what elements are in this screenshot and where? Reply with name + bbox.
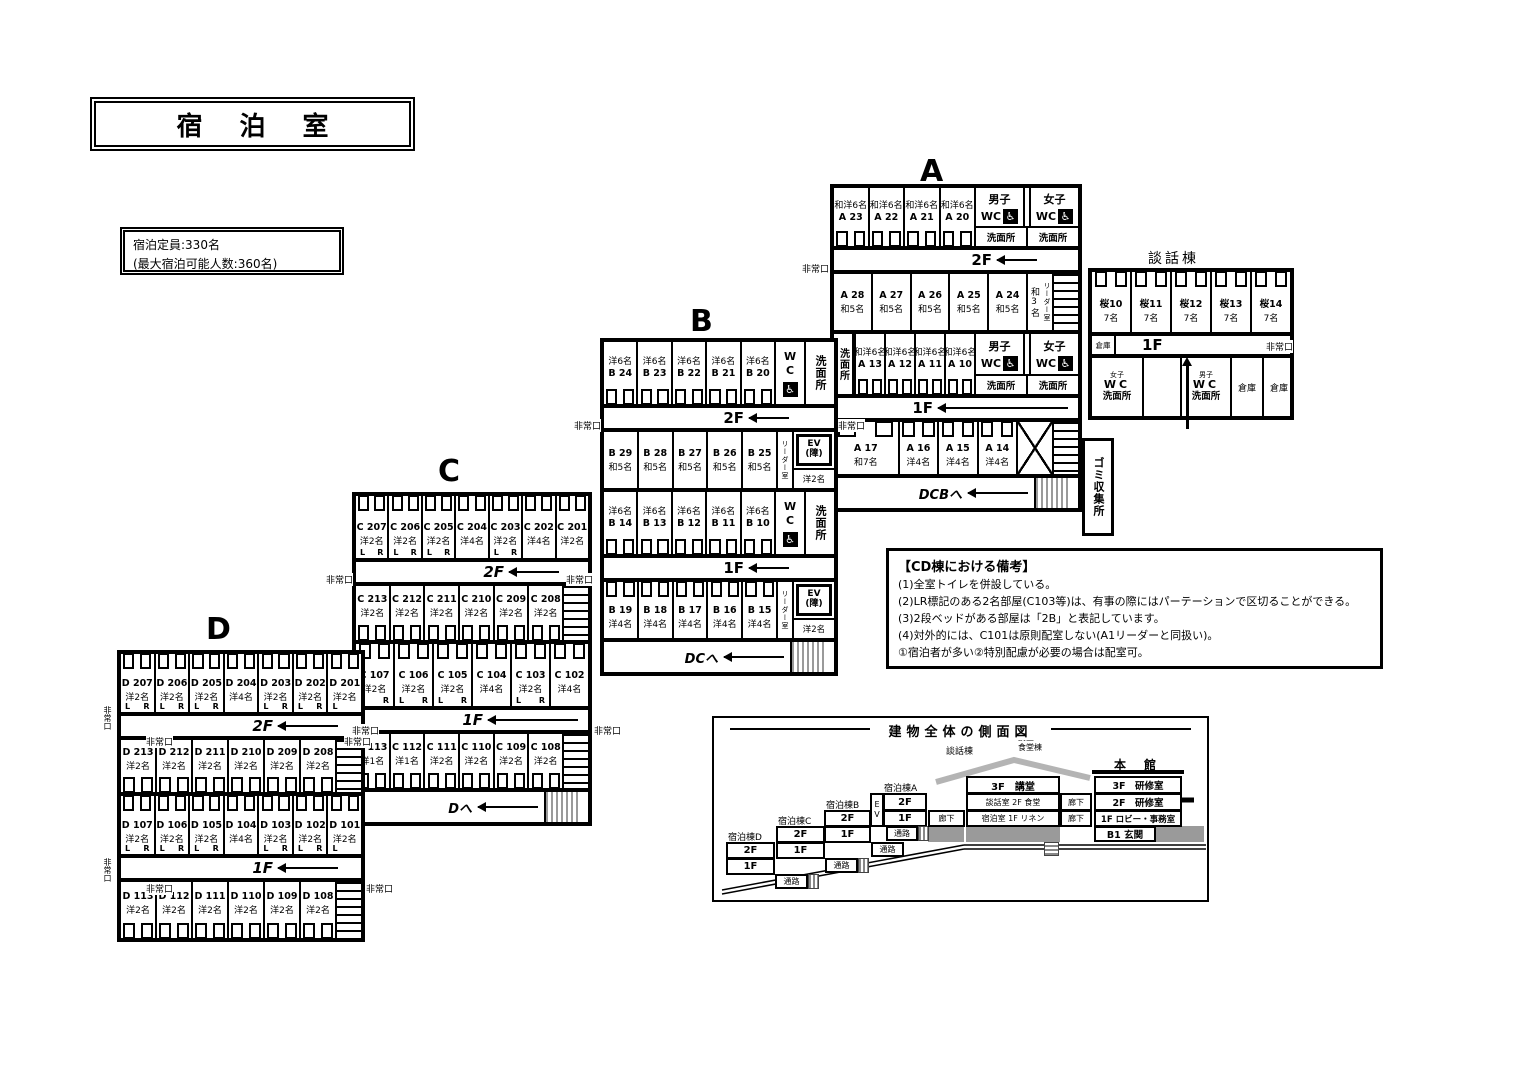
room-id: D 210: [230, 747, 261, 758]
room-id: C 202: [524, 522, 554, 533]
d-1f-room-row: D 107 洋2名 LR D 106 洋2名 LR D 105 洋2名 LR D…: [121, 796, 361, 858]
room-capacity: 洋2名: [395, 606, 419, 619]
room: C 206 洋2名 LR: [387, 496, 420, 558]
room-id: A 12: [888, 359, 912, 370]
wheelchair-icon: ♿: [783, 532, 798, 547]
room-id: A 26: [918, 290, 942, 301]
room: D 105 洋2名 LR: [188, 796, 223, 854]
c-exit-passage: Dへ: [356, 792, 588, 822]
room-capacity: 洋4名: [609, 617, 633, 630]
room-capacity: 洋2名: [363, 682, 387, 695]
room-id: C 109: [496, 742, 526, 753]
sv-lounge-label: 談話棟: [946, 744, 973, 757]
room-id: D 107: [122, 820, 153, 831]
room: A 26 和5名: [910, 274, 949, 330]
a-1f-room-row2: A 17 和7名 A 16 洋4名 A 15 洋4名 A 14 洋4名: [834, 422, 1078, 478]
cd-notes-box: 【CD棟における備考】 (1)全室トイレを併設している。(2)LR標記のある2名…: [886, 548, 1383, 669]
sv-hall-label2: 食堂棟: [1018, 742, 1042, 753]
room-capacity: 洋6名: [608, 354, 632, 367]
room-id: A 15: [946, 443, 970, 454]
room: D 103 洋2名 LR: [257, 796, 292, 854]
d-2f-room-row2: D 213 洋2名 D 212 洋2名 D 211 洋2名 D 210 洋2名 …: [121, 740, 361, 796]
room-capacity: 洋6名: [712, 354, 736, 367]
passage: [1142, 358, 1180, 416]
wc-room: WC ♿: [774, 492, 804, 554]
title-rule: [730, 728, 870, 730]
room-id: A 17: [854, 443, 878, 454]
building-c: C 207 洋2名 LR C 206 洋2名 LR C 205 洋2名 LR C…: [352, 492, 592, 826]
note-line: (2)LR標記のある2名部屋(C103等)は、有事の際にはパーテーションで区切る…: [898, 593, 1371, 609]
room-capacity: 洋2名: [360, 534, 384, 547]
left-arrow: [749, 567, 789, 569]
building-a: 和洋6名 A 23 和洋6名 A 22 和洋6名 A 21 和洋6名 A 20 …: [830, 184, 1082, 512]
room-id: 桜11: [1140, 296, 1163, 310]
room-capacity: 洋2名: [560, 534, 584, 547]
notes-title: 【CD棟における備考】: [898, 556, 1371, 575]
room: B 19 洋4名: [604, 582, 637, 638]
room: 洋6名 B 13: [636, 492, 670, 554]
room: C 201 洋2名: [555, 496, 588, 558]
closed-room: [1016, 422, 1052, 474]
room-id: D 202: [295, 678, 326, 689]
room: 洋6名 B 10: [740, 492, 774, 554]
small-room: 洋2名: [794, 618, 834, 638]
room-id: B 14: [608, 518, 632, 529]
room-capacity: 和洋6名: [834, 198, 867, 211]
floor-tag-1f: 1F: [462, 711, 483, 729]
elevator: EV(障): [796, 434, 832, 466]
garbage-station: ゴミ収集所: [1082, 438, 1114, 536]
stair-hatch: [790, 642, 824, 672]
sv-main-roof: [1092, 770, 1184, 774]
lr-markers: LR: [194, 844, 219, 853]
lr-markers: LR: [263, 702, 288, 711]
room: 洋6名 B 21: [705, 342, 739, 404]
room-id: D 104: [226, 820, 257, 831]
room-capacity: 和洋6名: [941, 198, 974, 211]
room-id: C 103: [515, 670, 545, 681]
storage-room: 倉庫: [1230, 358, 1262, 416]
room-capacity: 和洋6名: [854, 345, 887, 358]
left-arrow: [938, 407, 1068, 409]
room-id: D 109: [266, 891, 297, 902]
room: 和洋6名 A 13: [854, 334, 884, 394]
room-id: C 110: [461, 742, 491, 753]
b-exit-passage: DCへ: [604, 642, 834, 672]
room-id: C 209: [496, 594, 526, 605]
room-id: D 205: [191, 678, 222, 689]
room-id: C 203: [490, 522, 520, 533]
sv-corridor-2f: 廊下: [1060, 793, 1092, 811]
room-capacity: 洋6名: [712, 504, 736, 517]
c-1f-room-row2: C 113 洋1名 C 112 洋1名 C 111 洋2名 C 110 洋2名 …: [356, 734, 588, 792]
elevator-block: EV(障) 洋2名: [792, 582, 834, 638]
room: D 205 洋2名 LR: [188, 654, 223, 712]
note-line: (4)対外的には、C101は原則配室しない(A1リーダーと同扱い)。: [898, 627, 1371, 643]
room: 洋6名 B 24: [604, 342, 636, 404]
emergency-exit-label: 非常口: [102, 858, 113, 882]
room-capacity: 洋6名: [746, 354, 770, 367]
washroom: 洗面所: [804, 492, 834, 554]
floor-tag-2f: 2F: [723, 409, 744, 427]
room: A 25 和5名: [948, 274, 987, 330]
room: 洋6名 B 11: [705, 492, 739, 554]
room-capacity: 洋2名: [198, 903, 222, 916]
room: 桜14 7名: [1250, 272, 1290, 332]
room-id: D 207: [122, 678, 153, 689]
sv-stairs: [808, 874, 819, 889]
room: A 14 洋4名: [977, 422, 1016, 474]
room-capacity: 洋6名: [643, 504, 667, 517]
elevator-block: EV(障) 洋2名: [792, 432, 834, 488]
room-capacity: 洋2名: [270, 759, 294, 772]
wall: [1023, 188, 1031, 226]
room-id: A 11: [918, 359, 942, 370]
room-id: D 111: [194, 891, 225, 902]
room-capacity: 洋2名: [270, 903, 294, 916]
womens-wc: 女子 WC♿: [1031, 334, 1078, 374]
sv-corridor-a: 廊下: [928, 810, 965, 827]
room: D 206 洋2名 LR: [154, 654, 189, 712]
lr-markers: L: [332, 844, 357, 853]
storage-room: 倉庫: [1262, 358, 1294, 416]
building-d-label: D: [206, 612, 231, 647]
lr-markers: LR: [494, 548, 517, 557]
sv-main-2f: 2F 研修室: [1094, 793, 1182, 811]
room-capacity: 和洋6名: [944, 345, 977, 358]
mens-wc: 男子 WC♿: [976, 188, 1023, 226]
room: B 17 洋4名: [672, 582, 707, 638]
room: 和洋6名 A 12: [884, 334, 914, 394]
room-id: C 201: [557, 522, 587, 533]
room-capacity: 洋2名: [499, 754, 523, 767]
room-id: D 201: [329, 678, 360, 689]
note-line: (3)2段ベッドがある部屋は「2B」と表記しています。: [898, 610, 1371, 626]
lr-markers: LR: [125, 702, 150, 711]
room-capacity: 洋2名: [360, 606, 384, 619]
room: D 210 洋2名: [227, 740, 263, 792]
b-1f-room-row2: B 19 洋4名 B 18 洋4名 B 17 洋4名 B 16 洋4名 B 15…: [604, 582, 834, 642]
sv-d-passage: 通路: [775, 874, 808, 889]
lr-markers: LR: [160, 844, 185, 853]
room-capacity: 和5名: [609, 460, 633, 473]
room-capacity: 洋6名: [746, 504, 770, 517]
room: C 109 洋2名: [493, 734, 528, 788]
room: D 108 洋2名: [299, 882, 335, 938]
wall: [1023, 334, 1031, 374]
room-id: C 102: [554, 670, 584, 681]
room: C 210 洋2名: [458, 586, 493, 640]
room-capacity: 和5名: [918, 302, 942, 315]
lounge-corridor: 倉庫 1F: [1092, 336, 1290, 358]
sv-stairs: [858, 858, 869, 873]
room-capacity: 洋2名: [162, 903, 186, 916]
left-arrow: [997, 259, 1037, 261]
sv-main-b1: B1 玄関: [1094, 826, 1156, 842]
lr-markers: LR: [393, 548, 416, 557]
room-capacity: 洋2名: [427, 534, 451, 547]
building-c-label: C: [438, 454, 460, 489]
a-1f-room-row: 洗面所 和洋6名 A 13 和洋6名 A 12 和洋6名 A 11 和洋6名 A…: [834, 334, 1078, 398]
room-capacity: 洋2名: [126, 759, 150, 772]
room-id: C 205: [423, 522, 453, 533]
room: C 105 洋2名 LR: [432, 644, 471, 706]
sv-c-passage: 通路: [825, 858, 858, 873]
room: C 211 洋2名: [423, 586, 458, 640]
room-capacity: 洋2名: [430, 754, 454, 767]
to-dcb-label: DCBへ: [919, 484, 962, 503]
leader-room: リーダー室: [776, 432, 792, 488]
lr-markers: LR: [298, 702, 323, 711]
sideview-title: 建物全体の側面図: [880, 721, 1040, 740]
lr-markers: LR: [298, 844, 323, 853]
room-capacity: 洋2名: [126, 903, 150, 916]
floor-tag-1f: 1F: [912, 399, 933, 417]
room: C 203 洋2名 LR: [488, 496, 521, 558]
lr-markers: LR: [125, 844, 150, 853]
room-capacity: 和5名: [957, 302, 981, 315]
room: A 16 洋4名: [898, 422, 937, 474]
stairs: [562, 586, 588, 640]
room-id: D 208: [302, 747, 333, 758]
room-id: A 28: [840, 290, 864, 301]
lr-markers: LR: [194, 702, 219, 711]
room: D 110 洋2名: [227, 882, 263, 938]
room-capacity: 和7名: [854, 455, 878, 468]
emergency-exit-label: 非常口: [802, 262, 829, 275]
room-capacity: 洋2名: [534, 754, 558, 767]
a-2f-facilities: 男子 WC♿ 女子 WC♿ 洗面所洗面所: [974, 188, 1078, 246]
room: B 16 洋4名: [706, 582, 741, 638]
room-id: D 105: [191, 820, 222, 831]
room-id: C 204: [457, 522, 487, 533]
room-id: B 26: [713, 448, 737, 459]
wheelchair-icon: ♿: [1003, 356, 1018, 371]
ground: [928, 826, 964, 842]
room-id: A 27: [879, 290, 903, 301]
room-capacity: 和5名: [841, 302, 865, 315]
wheelchair-icon: ♿: [1058, 209, 1073, 224]
room-id: 桜10: [1100, 296, 1123, 310]
d-1f-corridor: 1F: [121, 858, 361, 882]
stair-hatch: [1034, 478, 1068, 508]
a-2f-corridor: 2F: [834, 250, 1078, 274]
room-id: C 213: [357, 594, 387, 605]
sv-b-2f: 2F: [824, 810, 871, 827]
room-id: C 104: [476, 670, 506, 681]
room: A 15 洋4名: [937, 422, 976, 474]
stairs: [562, 734, 588, 788]
room-id: C 112: [392, 742, 422, 753]
wc-room: WC ♿: [774, 342, 804, 404]
room-capacity: 洋2名: [494, 534, 518, 547]
room-id: C 105: [437, 670, 467, 681]
room: A 28 和5名: [834, 274, 871, 330]
emergency-exit-label: 非常口: [1266, 340, 1293, 353]
room-capacity: 洋4名: [643, 617, 667, 630]
emergency-exit-label: 非常口: [146, 882, 173, 895]
left-arrow: [478, 806, 538, 808]
room: C 102 洋4名: [549, 644, 588, 706]
room: D 109 洋2名: [263, 882, 299, 938]
note-line: (1)全室トイレを併設している。: [898, 576, 1371, 592]
room-capacity: 洋2名: [519, 682, 543, 695]
room-id: B 18: [643, 605, 667, 616]
floor-tag-2f: 2F: [483, 563, 504, 581]
b-1f-corridor: 1F: [604, 558, 834, 582]
room: 和洋6名 A 20: [939, 188, 975, 246]
a-1f-corridor: 1F: [834, 398, 1078, 422]
b-2f-room-row2: B 29 和5名 B 28 和5名 B 27 和5名 B 26 和5名 B 25…: [604, 432, 834, 492]
room-capacity: 洋4名: [460, 534, 484, 547]
womens-wc: 女子 WC♿: [1031, 188, 1078, 226]
room-id: C 210: [461, 594, 491, 605]
room: D 209 洋2名: [263, 740, 299, 792]
wheelchair-icon: ♿: [783, 382, 798, 397]
building-b-label: B: [690, 304, 713, 339]
sv-stairs: [1044, 842, 1059, 856]
leader-room: 和3名 リーダー室: [1026, 274, 1052, 330]
elevator: EV(障): [796, 584, 832, 616]
room-id: C 207: [357, 522, 387, 533]
room-id: 桜12: [1180, 296, 1203, 310]
ground: [1154, 826, 1204, 842]
b-2f-corridor: 2F: [604, 408, 834, 432]
room: 洋6名 B 20: [740, 342, 774, 404]
room-id: B 23: [643, 368, 667, 379]
room-capacity: 洋2名: [464, 606, 488, 619]
room-capacity: 洋4名: [946, 455, 970, 468]
room-capacity: 和5名: [713, 460, 737, 473]
room: 和洋6名 A 22: [868, 188, 904, 246]
left-arrow: [509, 571, 559, 573]
room: D 106 洋2名 LR: [154, 796, 189, 854]
room-capacity: 7名: [1104, 311, 1119, 324]
building-side-view: 建物全体の側面図 談話棟 講堂・ 食堂棟 宿泊棟A 2F 1F 通路 EV 宿泊…: [712, 716, 1209, 902]
room-capacity: 洋6名: [643, 354, 667, 367]
room-capacity: 7名: [1184, 311, 1199, 324]
mens-wc: 男子 WC♿: [976, 334, 1023, 374]
room: C 112 洋1名: [389, 734, 424, 788]
to-dc-label: DCへ: [685, 648, 718, 667]
room-id: A 20: [945, 212, 969, 223]
room: C 108 洋2名: [527, 734, 562, 788]
washroom: 洗面所: [804, 342, 834, 404]
room-capacity: 7名: [1264, 311, 1279, 324]
lr-markers: LR: [427, 548, 450, 557]
lounge-building: 桜10 7名 桜11 7名 桜12 7名 桜13 7名 桜14 7名 倉庫 1F…: [1088, 268, 1294, 420]
room-capacity: 和5名: [996, 302, 1020, 315]
room-id: B 19: [609, 605, 633, 616]
room-id: D 211: [194, 747, 225, 758]
a-2f-room-row2: A 28 和5名 A 27 和5名 A 26 和5名 A 25 和5名 A 24…: [834, 274, 1078, 334]
sv-hall-1f: 宿泊室 1F リネン: [966, 810, 1060, 827]
room-id: B 24: [608, 368, 632, 379]
room: C 104 洋4名: [471, 644, 510, 706]
sv-ev: EV: [870, 793, 884, 827]
room-id: D 209: [266, 747, 297, 758]
room-id: C 208: [531, 594, 561, 605]
room-id: A 23: [839, 212, 863, 223]
room: B 28 和5名: [637, 432, 672, 488]
room-capacity: 洋2名: [441, 682, 465, 695]
left-arrow: [278, 725, 338, 727]
storage-room: 倉庫: [1092, 336, 1116, 354]
room-id: B 22: [677, 368, 701, 379]
sv-a-2f: 2F: [883, 793, 927, 811]
room: 洋6名 B 14: [604, 492, 636, 554]
room-capacity: 洋4名: [748, 617, 772, 630]
room-id: C 111: [427, 742, 457, 753]
room-id: B 25: [748, 448, 772, 459]
room-id: C 106: [398, 670, 428, 681]
room: B 15 洋4名: [741, 582, 776, 638]
room-id: B 11: [712, 518, 736, 529]
room-id: B 28: [643, 448, 667, 459]
room: C 202 洋4名: [521, 496, 554, 558]
room: 和洋6名 A 21: [903, 188, 939, 246]
small-room: 洋2名: [794, 468, 834, 488]
emergency-exit-label: 非常口: [594, 724, 621, 737]
room: D 207 洋2名 LR: [121, 654, 154, 712]
room-id: D 203: [260, 678, 291, 689]
lr-markers: LR: [263, 844, 288, 853]
left-arrow: [488, 719, 578, 721]
to-d-label: Dへ: [448, 798, 472, 817]
room-capacity: 洋4名: [985, 455, 1009, 468]
ground: [966, 826, 1060, 842]
floor-tag-1f: 1F: [1142, 336, 1163, 354]
room-id: A 16: [906, 443, 930, 454]
room-capacity: 洋2名: [464, 754, 488, 767]
womens-wc-washroom: 女子 WC 洗面所: [1092, 358, 1142, 416]
wheelchair-icon: ♿: [1003, 209, 1018, 224]
room: 洋6名 B 22: [671, 342, 705, 404]
room-id: B 16: [713, 605, 737, 616]
room-capacity: 洋6名: [608, 504, 632, 517]
room: C 106 洋2名 LR: [393, 644, 432, 706]
sv-c-2f: 2F: [776, 826, 825, 843]
room-capacity: 洋4名: [480, 682, 504, 695]
room: B 29 和5名: [604, 432, 637, 488]
c-1f-corridor: 1F: [356, 710, 588, 734]
d-2f-room-row: D 207 洋2名 LR D 206 洋2名 LR D 205 洋2名 LR D…: [121, 654, 361, 716]
sv-hall-2f: 談話室 2F 食堂: [966, 793, 1060, 811]
washrooms: 洗面所洗面所: [976, 374, 1078, 394]
sv-stairs: [918, 826, 929, 841]
room-capacity: 洋4名: [229, 832, 253, 845]
room: D 104 洋4名: [223, 796, 258, 854]
room-capacity: 洋2名: [306, 903, 330, 916]
emergency-exit-label: 非常口: [146, 735, 173, 748]
c-2f-room-row: C 207 洋2名 LR C 206 洋2名 LR C 205 洋2名 LR C…: [356, 496, 588, 562]
left-arrow: [968, 492, 1028, 494]
room: C 209 洋2名: [493, 586, 528, 640]
sv-d-1f: 1F: [726, 858, 775, 875]
sv-b-1f: 1F: [824, 826, 871, 843]
room: 桜11 7名: [1130, 272, 1170, 332]
sv-main-3f: 3F 研修室: [1094, 776, 1182, 794]
room-id: B 29: [609, 448, 633, 459]
room-id: B 17: [678, 605, 702, 616]
left-arrow: [749, 417, 789, 419]
room: 桜10 7名: [1092, 272, 1130, 332]
room: C 213 洋2名: [356, 586, 389, 640]
room: B 18 洋4名: [637, 582, 672, 638]
room-id: C 211: [427, 594, 457, 605]
room-capacity: 洋2名: [306, 759, 330, 772]
room-capacity: 洋2名: [430, 606, 454, 619]
